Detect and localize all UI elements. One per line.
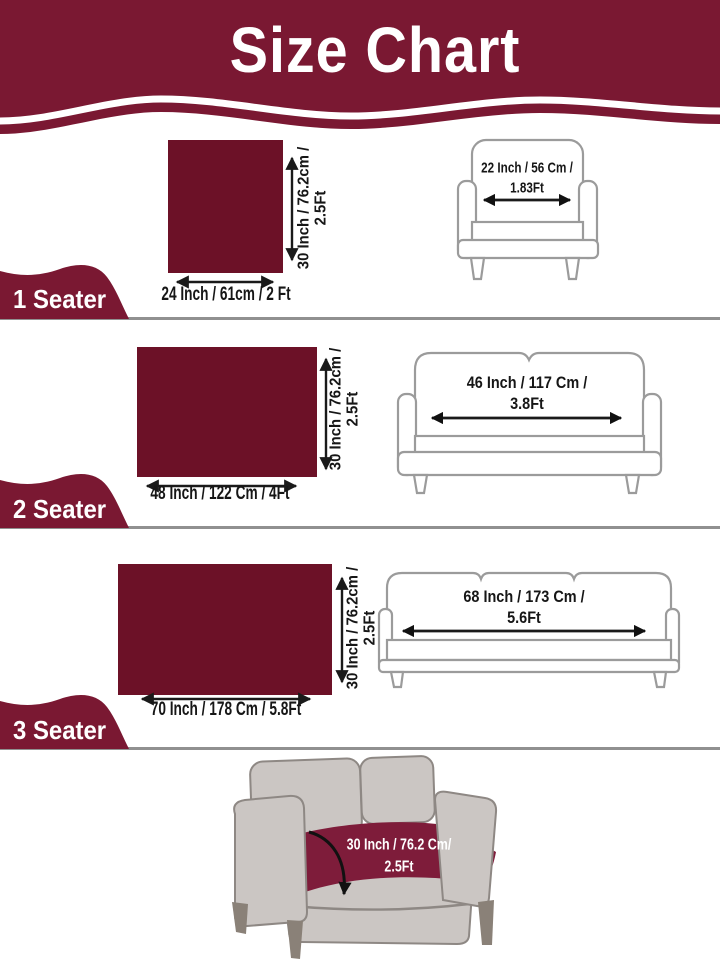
cover-swatch — [118, 564, 332, 695]
cover-height-label: 30 Inch / 76.2cm / 2.5Ft — [296, 147, 331, 269]
cover-depth-label: 30 Inch / 76.2 Cm/ 2.5Ft — [347, 834, 452, 877]
furniture-width-label: 46 Inch / 117 Cm / 3.8Ft — [467, 372, 587, 415]
cover-width-label: 48 Inch / 122 Cm / 4Ft — [150, 483, 289, 505]
cover-swatch — [168, 140, 283, 273]
furniture-width-label: 68 Inch / 173 Cm / 5.6Ft — [463, 586, 584, 629]
seater-ribbon-label: 2 Seater — [13, 494, 106, 525]
page-title: Size Chart — [230, 13, 521, 87]
cover-width-label: 24 Inch / 61cm / 2 Ft — [161, 284, 290, 306]
cover-height-label: 30 Inch / 76.2cm / 2.5Ft — [345, 567, 380, 689]
cover-height-label: 30 Inch / 76.2cm / 2.5Ft — [328, 348, 363, 470]
size-chart-page: Size Chart 1 Seater 30 Inch / 76.2cm / 2… — [0, 0, 720, 960]
size-chart-artwork — [0, 0, 720, 960]
seater-ribbon-label: 1 Seater — [13, 284, 106, 315]
cover-swatch — [137, 347, 317, 477]
cover-width-label: 70 Inch / 178 Cm / 5.8Ft — [151, 699, 302, 721]
furniture-width-label: 22 Inch / 56 Cm / 1.83Ft — [481, 159, 573, 198]
seater-ribbon-label: 3 Seater — [13, 715, 106, 746]
